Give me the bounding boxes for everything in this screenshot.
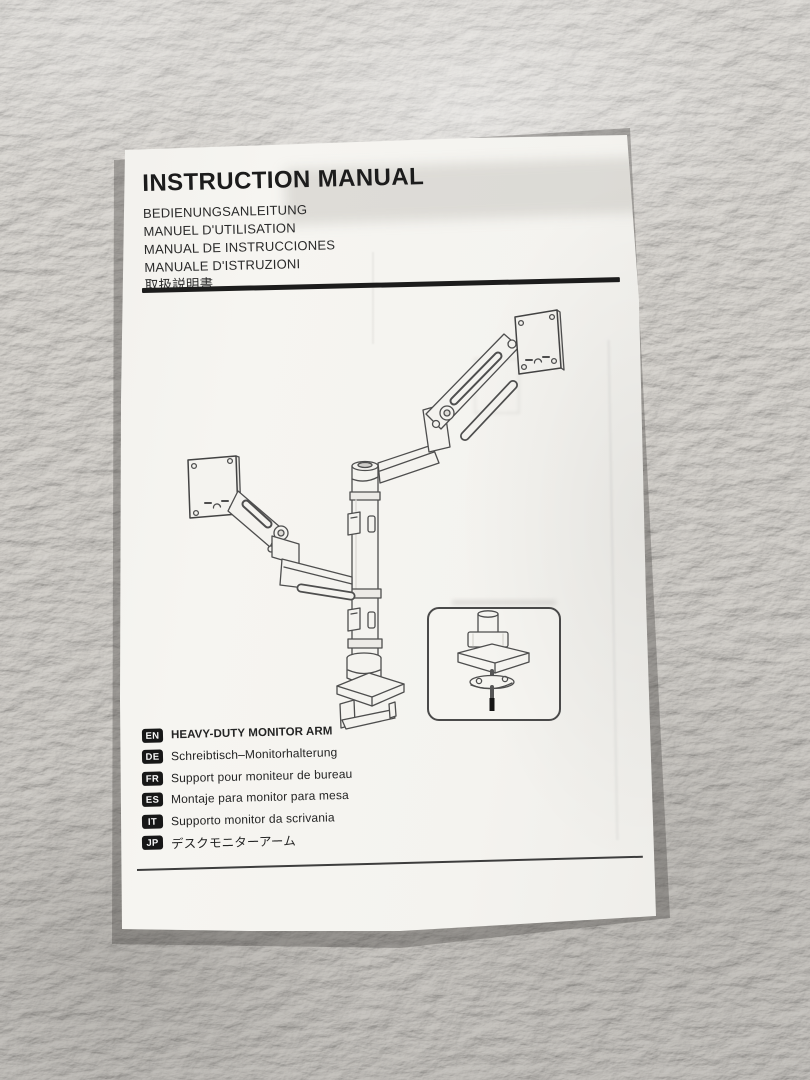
bleedthrough-table-line [608,340,619,840]
lang-label-jp: デスクモニターアーム [171,830,296,852]
lang-badge-it: IT [142,814,163,829]
right-vesa-plate [515,310,564,374]
pole [348,462,382,657]
photo: INSTRUCTION MANUAL BEDIENUNGSANLEITUNG M… [0,0,810,1080]
lang-badge-fr: FR [142,771,163,786]
grommet-inset-box [428,608,560,720]
lang-badge-en: EN [142,728,163,743]
monitor-arm-line-drawing [160,300,600,730]
manual-title: INSTRUCTION MANUAL [142,163,424,198]
lang-label-it: Supporto monitor da scrivania [171,810,335,828]
lang-badge-es: ES [142,792,163,807]
language-row-jp: JP デスクモニターアーム [142,830,353,851]
language-row-es: ES Montaje para monitor para mesa [142,787,353,808]
lang-label-es: Montaje para monitor para mesa [171,788,349,806]
language-row-fr: FR Support pour moniteur de bureau [142,766,353,787]
language-list: EN HEAVY-DUTY MONITOR ARM DE Schreibtisc… [142,728,352,856]
lang-badge-jp: JP [142,835,163,850]
lang-label-de: Schreibtisch–Monitorhalterung [171,746,338,764]
right-arm [378,310,564,483]
bottom-rule [137,856,643,871]
left-arm [188,456,352,596]
language-row-it: IT Supporto monitor da scrivania [142,808,353,829]
language-row-de: DE Schreibtisch–Monitorhalterung [142,744,353,765]
desk-clamp [337,653,404,729]
lang-label-fr: Support pour moniteur de bureau [171,767,353,785]
title-block: INSTRUCTION MANUAL BEDIENUNGSANLEITUNG M… [142,163,427,295]
lang-badge-de: DE [142,750,163,765]
lang-label-en: HEAVY-DUTY MONITOR ARM [171,725,333,741]
